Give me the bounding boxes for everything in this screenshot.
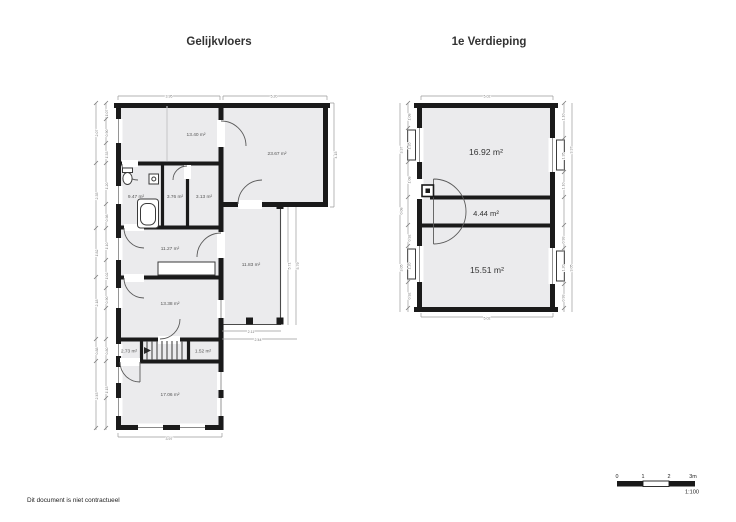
room-area-label: 15.51 m² <box>470 265 504 275</box>
dimension-label: 0.88 <box>95 348 99 355</box>
scale-tick-label: 0 <box>616 474 619 480</box>
scale-tick-label: 2 <box>668 474 671 480</box>
room-area-label: 13.38 m² <box>161 301 180 307</box>
electrical-panel-icon <box>422 185 434 197</box>
dimension-label: 2.18 <box>95 300 99 307</box>
dimension-label: 2.45 <box>95 393 99 400</box>
room-area-label: 9.47 m² <box>128 194 145 200</box>
dimension-label: 1.20 <box>562 265 566 272</box>
dimension-label: 1.35 <box>562 153 566 160</box>
dimension-label: 2.35 <box>95 193 99 200</box>
room-area-label: 11.83 m² <box>242 262 261 268</box>
scale-bar-segment <box>617 481 643 487</box>
dimension-label: 0.93 <box>562 237 566 244</box>
dimension-label: 0.93 <box>562 295 566 302</box>
dimension-label: 1.02 <box>105 273 109 280</box>
dimension-label: 5.79 <box>296 263 300 270</box>
dimension-label: 1.35 <box>408 143 412 150</box>
toilet-icon <box>123 168 133 185</box>
dimension-label: 1.82 <box>95 250 99 257</box>
page-title-first: 1e Verdieping <box>452 36 527 48</box>
room-area-label: 4.44 m² <box>473 209 499 218</box>
room-area-label: 11.27 m² <box>161 246 180 252</box>
dimension-label: 1.20 <box>105 183 109 190</box>
dimension-label: 0.92 <box>408 293 412 300</box>
dimension-label: 2.07 <box>95 130 99 137</box>
dimension-label: 0.90 <box>105 297 109 304</box>
kitchen-counter <box>158 262 215 275</box>
page-title-ground: Gelijkvloers <box>186 36 251 48</box>
dimension-label: 1.10 <box>562 183 566 190</box>
floorplan-page: Gelijkvloers 1e Verdieping <box>0 0 736 522</box>
floorplan-canvas: Gelijkvloers 1e Verdieping <box>0 0 736 522</box>
dimension-label: 3.95 <box>166 95 173 99</box>
sink-icon <box>149 174 159 184</box>
room-area-label: 3.13 m² <box>196 194 213 200</box>
scale-tick-label: 1 <box>642 474 645 480</box>
room-area-label: 13.40 m² <box>187 132 206 138</box>
scale-bar: 0 1 2 3m 1:100 <box>616 474 700 496</box>
dimension-label: 0.80 <box>105 348 109 355</box>
scale-ratio-label: 1:100 <box>685 490 699 496</box>
dimension-label: 5.20 <box>271 95 278 99</box>
ground-floor-plan: 13.40 m² 23.67 m² 9.47 m² 3.76 m² 3.13 m… <box>94 95 338 442</box>
dimension-label: 3.05 <box>570 265 574 272</box>
disclaimer-text: Dit document is niet contractueel <box>27 497 120 504</box>
dimension-label: 1.10 <box>562 114 566 121</box>
dimension-label: 2.44 <box>255 338 262 342</box>
dimension-label: 5.02 <box>484 95 491 99</box>
dimension-label: 3.97 <box>166 437 173 441</box>
dimension-label: 5.71 <box>288 263 292 270</box>
dimension-label: 3.05 <box>400 265 404 272</box>
scale-bar-segment <box>669 481 695 487</box>
dimension-label: 0.08 <box>400 208 404 215</box>
first-floor-footprint <box>417 103 555 312</box>
scale-bar-segment <box>643 481 669 487</box>
room-area-label: 2.73 m² <box>121 349 138 355</box>
room-area-label: 17.06 m² <box>161 392 180 398</box>
dimension-label: 4.15 <box>334 152 338 159</box>
scale-tick-label: 3m <box>689 474 697 480</box>
dimension-label: 1.20 <box>408 263 412 270</box>
dimension-label: 3.37 <box>400 147 404 154</box>
dimension-label: 0.98 <box>105 215 109 222</box>
first-floor-plan: 16.92 m² 4.44 m² 15.51 m² 5.02 5.02 3.37… <box>400 95 574 321</box>
dimension-label: 1.33 <box>105 152 109 159</box>
dimension-label: 0.92 <box>408 235 412 242</box>
room-area-label: 3.76 m² <box>167 194 184 200</box>
dimension-label: 1.15 <box>105 387 109 394</box>
dimension-label: 2.11 <box>248 330 255 334</box>
dimension-label: 1.07 <box>105 110 109 117</box>
room-area-label: 1.52 m² <box>195 349 212 355</box>
dimension-label: 1.08 <box>408 177 412 184</box>
dimension-label: 5.02 <box>484 317 491 321</box>
room-area-label: 16.92 m² <box>469 147 503 157</box>
room-area-label: 23.67 m² <box>268 151 287 157</box>
dimension-label: 1.10 <box>105 243 109 250</box>
dimension-label: 1.08 <box>408 114 412 121</box>
bathtub-icon <box>138 199 159 228</box>
dimension-label: 0.90 <box>105 130 109 137</box>
dimension-label: 3.37 <box>570 147 574 154</box>
